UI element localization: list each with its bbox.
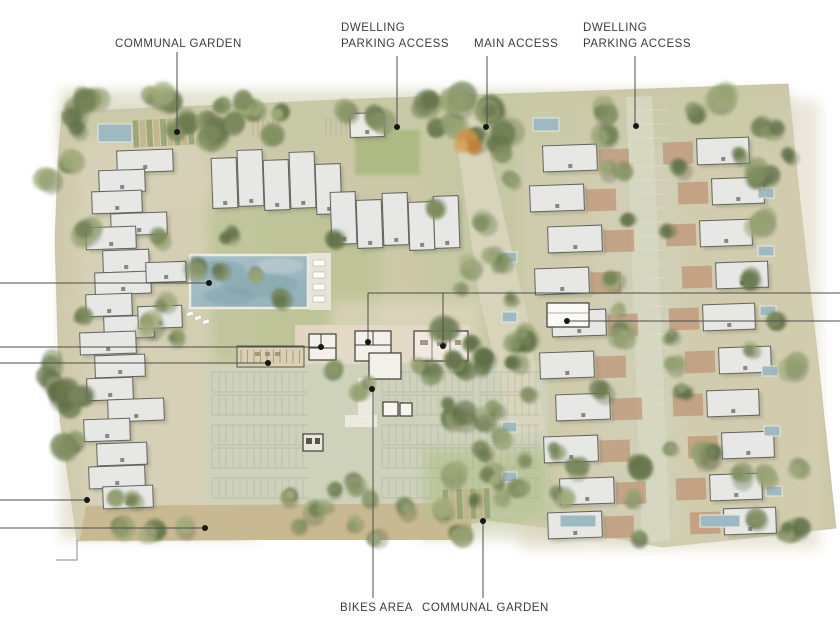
label-text: COMMUNAL GARDEN xyxy=(422,602,549,614)
site-plan-canvas: COMMUNAL GARDEN DWELLING PARKING ACCESS … xyxy=(0,0,840,630)
label-dwelling-parking-access-left: DWELLING PARKING ACCESS xyxy=(341,21,449,52)
site-plan-rendering xyxy=(0,0,840,630)
label-text: BIKES AREA xyxy=(340,602,413,614)
label-communal-garden-top: COMMUNAL GARDEN xyxy=(115,37,242,53)
label-text-line2: PARKING ACCESS xyxy=(583,37,691,53)
label-communal-garden-bottom: COMMUNAL GARDEN xyxy=(422,601,549,617)
label-text: COMMUNAL GARDEN xyxy=(115,38,242,50)
label-text-line2: PARKING ACCESS xyxy=(341,37,449,53)
label-text-line1: DWELLING xyxy=(583,21,691,37)
label-dwelling-parking-access-right: DWELLING PARKING ACCESS xyxy=(583,21,691,52)
label-text-line1: DWELLING xyxy=(341,21,449,37)
label-bikes-area: BIKES AREA xyxy=(340,601,413,617)
label-text: MAIN ACCESS xyxy=(474,38,558,50)
label-main-access: MAIN ACCESS xyxy=(474,37,558,53)
